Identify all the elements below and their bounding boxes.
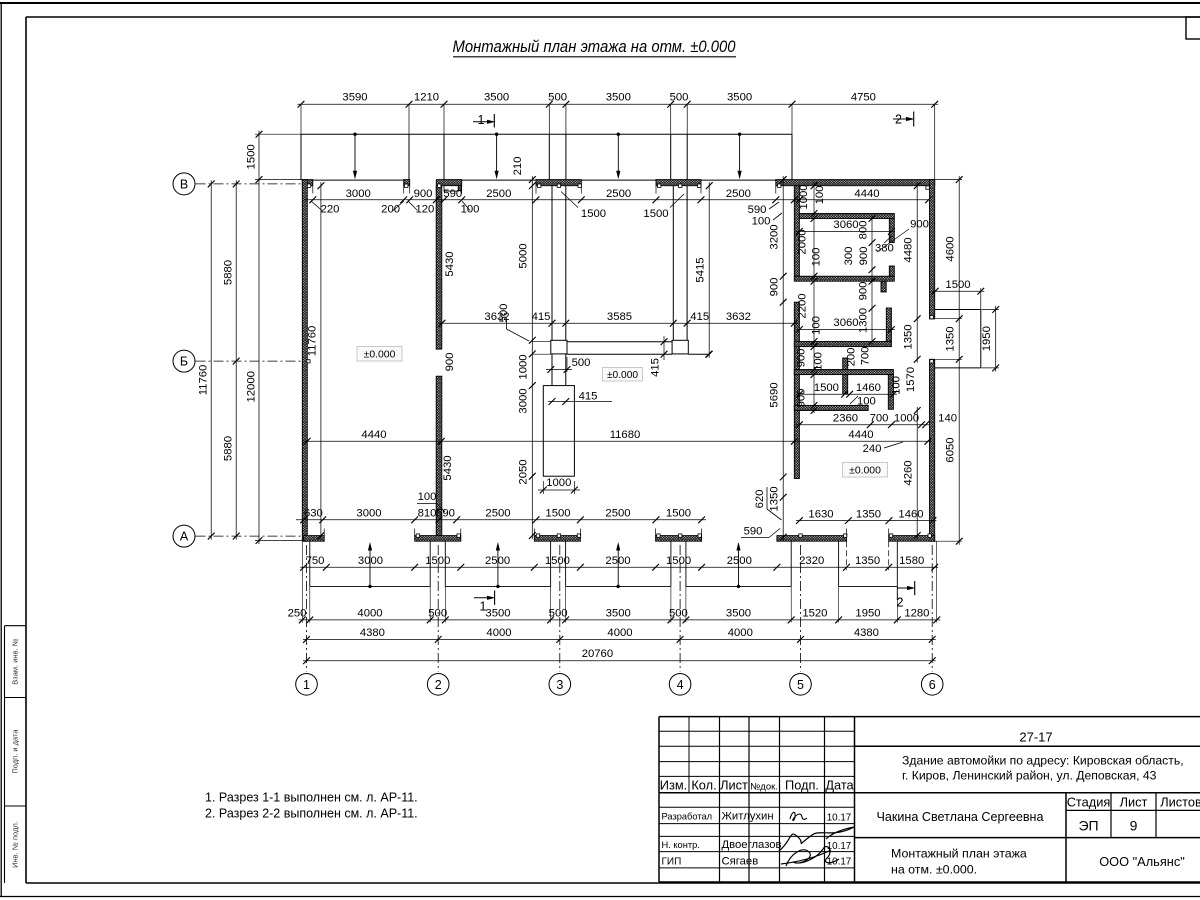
svg-text:Изм.: Изм.	[660, 778, 687, 793]
svg-text:11760: 11760	[306, 326, 318, 357]
svg-text:1500: 1500	[581, 208, 606, 220]
svg-text:20760: 20760	[582, 648, 613, 660]
svg-text:240: 240	[863, 443, 882, 455]
svg-text:4380: 4380	[360, 627, 385, 639]
svg-text:5880: 5880	[223, 436, 235, 461]
svg-text:415: 415	[532, 311, 551, 323]
svg-text:Монтажный план этажа: Монтажный план этажа	[891, 847, 1027, 861]
svg-text:В: В	[180, 177, 188, 191]
svg-text:2500: 2500	[727, 555, 752, 567]
svg-text:750: 750	[306, 555, 325, 567]
svg-text:3060: 3060	[833, 219, 858, 231]
svg-text:1500: 1500	[945, 279, 970, 291]
svg-text:1500: 1500	[545, 508, 570, 520]
svg-text:27-17: 27-17	[1019, 730, 1052, 745]
svg-text:±0.000: ±0.000	[364, 349, 396, 360]
svg-text:250: 250	[288, 607, 307, 619]
svg-text:4600: 4600	[945, 236, 957, 261]
svg-text:220: 220	[321, 204, 340, 216]
svg-text:1000: 1000	[894, 412, 919, 424]
svg-text:Двоеглазов: Двоеглазов	[722, 839, 782, 851]
svg-text:210: 210	[512, 157, 524, 176]
svg-text:А: А	[180, 530, 189, 544]
svg-text:Н. контр.: Н. контр.	[662, 840, 700, 850]
svg-text:3500: 3500	[484, 92, 509, 104]
svg-text:500: 500	[549, 607, 568, 619]
svg-text:1000: 1000	[518, 354, 530, 379]
svg-text:на отм. ±0.000.: на отм. ±0.000.	[891, 863, 977, 877]
svg-text:2500: 2500	[606, 188, 631, 200]
svg-text:100: 100	[752, 216, 771, 228]
svg-text:1500: 1500	[666, 508, 691, 520]
svg-text:1500: 1500	[425, 555, 450, 567]
svg-text:1460: 1460	[856, 382, 881, 394]
svg-text:Стадия: Стадия	[1067, 795, 1111, 810]
svg-text:1: 1	[303, 678, 310, 692]
svg-text:500: 500	[428, 607, 447, 619]
svg-text:4440: 4440	[854, 188, 879, 200]
svg-text:Лист: Лист	[720, 778, 748, 793]
svg-text:4260: 4260	[903, 460, 915, 485]
svg-text:1350: 1350	[945, 326, 957, 351]
svg-text:9: 9	[1130, 818, 1138, 834]
svg-text:120: 120	[415, 204, 434, 216]
svg-text:Здание автомойки по адресу: Ки: Здание автомойки по адресу: Кировская об…	[902, 754, 1184, 768]
svg-text:2000: 2000	[796, 229, 808, 254]
svg-text:2200: 2200	[796, 293, 808, 318]
svg-text:100: 100	[890, 376, 902, 395]
svg-text:5880: 5880	[223, 260, 235, 285]
svg-text:3: 3	[556, 678, 563, 692]
svg-text:Житлухин: Житлухин	[722, 811, 774, 823]
svg-text:1950: 1950	[981, 326, 993, 351]
svg-text:11680: 11680	[610, 429, 641, 441]
svg-text:100: 100	[418, 491, 437, 503]
svg-text:5430: 5430	[444, 251, 456, 276]
svg-text:1500: 1500	[814, 382, 839, 394]
svg-text:300: 300	[843, 247, 855, 266]
svg-text:1500: 1500	[643, 208, 668, 220]
svg-text:100: 100	[857, 396, 876, 408]
svg-text:1300: 1300	[857, 308, 869, 333]
svg-text:Кол.: Кол.	[691, 778, 716, 793]
svg-text:140: 140	[938, 412, 957, 424]
svg-text:900: 900	[769, 278, 781, 297]
svg-text:1280: 1280	[904, 607, 929, 619]
svg-text:3500: 3500	[485, 607, 510, 619]
svg-text:2500: 2500	[486, 188, 511, 200]
svg-text:Инв. № подл.: Инв. № подл.	[11, 821, 20, 868]
svg-text:2. Разрез 2-2 выполнен см. л.: 2. Разрез 2-2 выполнен см. л. АР-11.	[205, 807, 418, 821]
svg-text:Взам. инв. №: Взам. инв. №	[11, 638, 20, 684]
svg-text:620: 620	[754, 490, 766, 509]
svg-text:3060: 3060	[833, 317, 858, 329]
svg-text:Разработал: Разработал	[662, 812, 713, 822]
svg-text:1500: 1500	[545, 555, 570, 567]
svg-text:4440: 4440	[848, 429, 873, 441]
svg-text:Подп. и дата: Подп. и дата	[11, 729, 20, 774]
svg-text:Монтажный план этажа на отм. ±: Монтажный план этажа на отм. ±0.000	[453, 38, 736, 56]
svg-text:3632: 3632	[726, 311, 751, 323]
svg-text:1000: 1000	[546, 477, 571, 489]
svg-text:3632: 3632	[484, 311, 509, 323]
svg-text:1350: 1350	[769, 486, 781, 511]
svg-text:415: 415	[579, 391, 598, 403]
svg-text:5000: 5000	[518, 243, 530, 268]
svg-text:1500: 1500	[666, 555, 691, 567]
svg-text:1500: 1500	[245, 144, 257, 169]
svg-text:3500: 3500	[726, 607, 751, 619]
svg-text:3500: 3500	[727, 92, 752, 104]
svg-text:4480: 4480	[903, 237, 915, 262]
svg-text:500: 500	[670, 92, 689, 104]
svg-text:№док.: №док.	[750, 782, 778, 793]
svg-text:Дата: Дата	[825, 778, 854, 793]
svg-text:4000: 4000	[486, 627, 511, 639]
svg-text:1460: 1460	[898, 508, 923, 520]
svg-text:700: 700	[859, 347, 871, 366]
svg-text:11760: 11760	[198, 365, 210, 396]
svg-text:2500: 2500	[485, 508, 510, 520]
svg-text:3000: 3000	[358, 555, 383, 567]
svg-text:1580: 1580	[899, 555, 924, 567]
svg-text:415: 415	[650, 358, 662, 377]
svg-text:800: 800	[857, 221, 869, 240]
svg-text:200: 200	[845, 348, 857, 367]
svg-text:100: 100	[814, 186, 826, 205]
svg-text:5: 5	[797, 678, 804, 692]
svg-text:590: 590	[748, 204, 767, 216]
svg-text:2500: 2500	[605, 555, 630, 567]
svg-text:5690: 5690	[769, 382, 781, 407]
svg-text:4000: 4000	[607, 627, 632, 639]
svg-text:900: 900	[795, 349, 807, 368]
svg-text:2: 2	[435, 678, 442, 692]
svg-text:6: 6	[929, 678, 936, 692]
svg-text:100: 100	[810, 248, 822, 267]
svg-text:Лист: Лист	[1120, 795, 1148, 810]
svg-text:3000: 3000	[356, 508, 381, 520]
svg-text:4750: 4750	[851, 92, 876, 104]
svg-text:4000: 4000	[357, 607, 382, 619]
svg-text:1000: 1000	[798, 184, 810, 209]
svg-text:500: 500	[548, 92, 567, 104]
svg-text:1. Разрез 1-1 выполнен см. л.: 1. Разрез 1-1 выполнен см. л. АР-11.	[205, 791, 418, 805]
svg-text:1570: 1570	[905, 367, 917, 392]
svg-text:100: 100	[812, 352, 824, 371]
svg-text:2500: 2500	[605, 508, 630, 520]
svg-text:1: 1	[478, 113, 485, 127]
svg-text:590: 590	[744, 526, 763, 538]
svg-text:ГИП: ГИП	[662, 856, 682, 867]
svg-text:590: 590	[443, 188, 462, 200]
svg-text:2320: 2320	[799, 555, 824, 567]
svg-text:12000: 12000	[245, 371, 257, 402]
svg-text:Подп.: Подп.	[785, 778, 819, 793]
svg-text:1350: 1350	[855, 555, 880, 567]
svg-text:ЭП: ЭП	[1078, 818, 1098, 834]
svg-text:Листов: Листов	[1160, 795, 1200, 810]
svg-text:900: 900	[910, 219, 929, 231]
svg-text:±0.000: ±0.000	[607, 370, 638, 381]
svg-text:3000: 3000	[346, 188, 371, 200]
svg-text:3500: 3500	[606, 607, 631, 619]
svg-text:6050: 6050	[945, 437, 957, 462]
svg-text:Б: Б	[180, 355, 188, 369]
svg-text:700: 700	[870, 412, 889, 424]
svg-text:900: 900	[414, 188, 433, 200]
svg-text:630: 630	[304, 508, 323, 520]
svg-text:4380: 4380	[854, 627, 879, 639]
svg-text:5415: 5415	[695, 257, 707, 282]
svg-text:200: 200	[381, 204, 400, 216]
svg-text:1350: 1350	[903, 324, 915, 349]
svg-text:г. Киров, Ленинский район, ул.: г. Киров, Ленинский район, ул. Деповская…	[902, 769, 1157, 783]
svg-text:810: 810	[418, 508, 437, 520]
svg-text:100: 100	[810, 316, 822, 335]
svg-text:5430: 5430	[442, 455, 454, 480]
svg-text:3590: 3590	[342, 92, 367, 104]
svg-text:4440: 4440	[361, 429, 386, 441]
svg-text:900: 900	[858, 247, 870, 266]
svg-text:4000: 4000	[728, 627, 753, 639]
svg-text:±0.000: ±0.000	[849, 465, 881, 476]
svg-text:3000: 3000	[518, 388, 530, 413]
svg-text:100: 100	[461, 204, 480, 216]
svg-text:1630: 1630	[808, 508, 833, 520]
svg-text:2500: 2500	[485, 555, 510, 567]
svg-text:Чакина Светлана Сергеевна: Чакина Светлана Сергеевна	[876, 810, 1043, 824]
svg-text:2360: 2360	[833, 412, 858, 424]
svg-text:500: 500	[669, 607, 688, 619]
svg-text:3500: 3500	[606, 92, 631, 104]
svg-text:900: 900	[857, 282, 869, 301]
svg-text:380: 380	[875, 242, 894, 254]
svg-text:2050: 2050	[518, 459, 530, 484]
svg-text:900: 900	[444, 353, 456, 372]
svg-text:1520: 1520	[802, 607, 827, 619]
svg-text:2500: 2500	[726, 188, 751, 200]
svg-text:590: 590	[436, 508, 455, 520]
svg-text:1350: 1350	[856, 508, 881, 520]
svg-text:1210: 1210	[414, 92, 439, 104]
svg-text:10.17: 10.17	[827, 813, 852, 824]
svg-text:3585: 3585	[607, 311, 632, 323]
svg-text:ООО "Альянс": ООО "Альянс"	[1099, 854, 1185, 869]
svg-text:Сягаев: Сягаев	[722, 855, 759, 867]
svg-text:500: 500	[572, 357, 591, 369]
svg-text:415: 415	[690, 311, 709, 323]
svg-text:1950: 1950	[855, 607, 880, 619]
svg-text:3200: 3200	[769, 224, 781, 249]
svg-text:4: 4	[677, 678, 684, 692]
